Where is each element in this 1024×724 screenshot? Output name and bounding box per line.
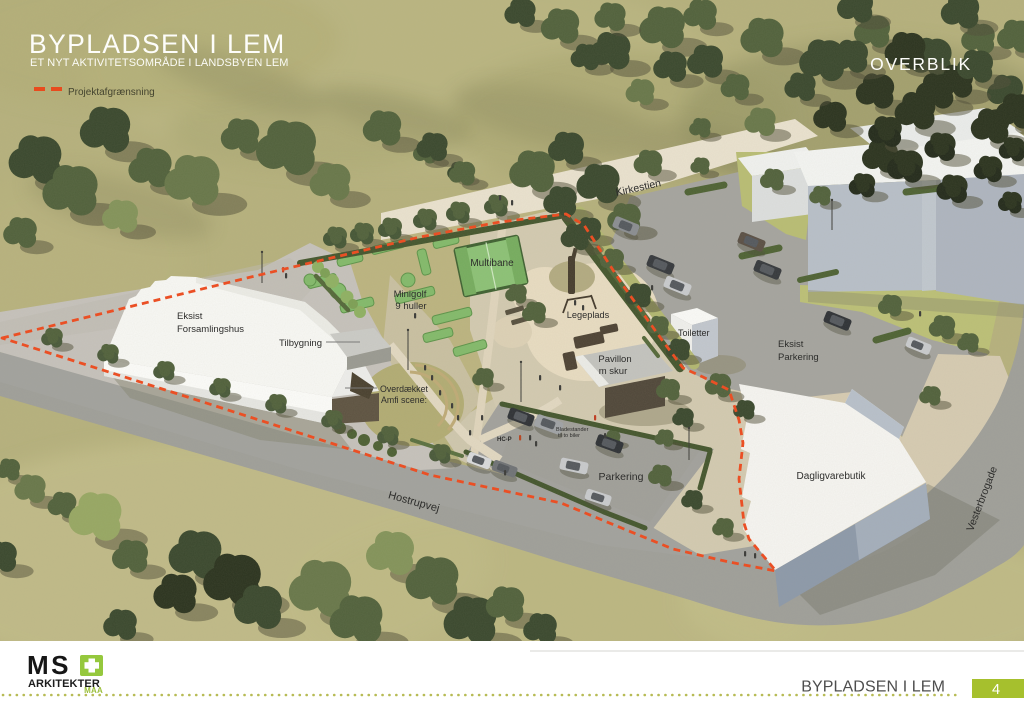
svg-text:BYPLADSEN I LEM: BYPLADSEN I LEM (801, 679, 945, 696)
svg-text:Projektafgrænsning: Projektafgrænsning (68, 87, 155, 98)
svg-text:ET NYT AKTIVITETSOMRÅDE I LAND: ET NYT AKTIVITETSOMRÅDE I LANDSBYEN LEM (30, 56, 289, 69)
svg-text:MAA: MAA (84, 686, 103, 695)
svg-text:MS: MS (27, 650, 71, 680)
svg-text:OVERBLIK: OVERBLIK (870, 54, 972, 74)
svg-text:BYPLADSEN I LEM: BYPLADSEN I LEM (29, 29, 286, 59)
svg-text:4: 4 (992, 682, 1000, 698)
